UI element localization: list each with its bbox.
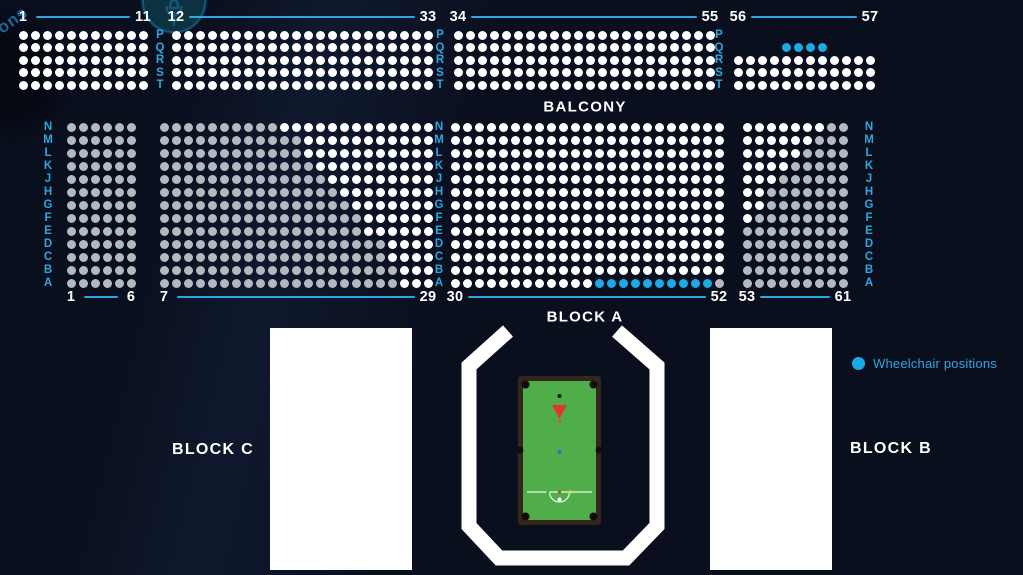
seat-floor-30-52-rowC-6[interactable]	[511, 253, 520, 262]
seat-balcony-1-11-rowR-11[interactable]	[139, 56, 148, 65]
seat-balcony-1-11-rowT-10[interactable]	[127, 81, 136, 90]
seat-balcony-12-33-rowP-11[interactable]	[292, 31, 301, 40]
seat-balcony-12-33-rowT-22[interactable]	[424, 81, 433, 90]
seat-floor-30-52-rowH-5[interactable]	[499, 188, 508, 197]
seat-balcony-1-11-rowQ-1[interactable]	[19, 43, 28, 52]
seat-balcony-34-55-rowR-15[interactable]	[622, 56, 631, 65]
seat-floor-30-52-rowG-10[interactable]	[559, 201, 568, 210]
seat-floor-30-52-rowA-11[interactable]	[571, 279, 580, 288]
seat-floor-7-29-rowB-21[interactable]	[400, 266, 409, 275]
seat-floor-30-52-rowB-11[interactable]	[571, 266, 580, 275]
seat-floor-30-52-rowK-23[interactable]	[715, 162, 724, 171]
seat-balcony-34-55-rowR-7[interactable]	[526, 56, 535, 65]
seat-floor-30-52-rowJ-14[interactable]	[607, 175, 616, 184]
seat-balcony-12-33-rowR-11[interactable]	[292, 56, 301, 65]
seat-balcony-34-55-rowT-22[interactable]	[706, 81, 715, 90]
seat-balcony-12-33-rowS-15[interactable]	[340, 68, 349, 77]
seat-balcony-34-55-rowQ-4[interactable]	[490, 43, 499, 52]
seat-floor-7-29-rowH-17[interactable]	[352, 188, 361, 197]
seat-floor-7-29-rowH-22[interactable]	[412, 188, 421, 197]
seat-balcony-34-55-rowR-5[interactable]	[502, 56, 511, 65]
seat-floor-7-29-rowG-20[interactable]	[388, 201, 397, 210]
seat-floor-30-52-rowN-6[interactable]	[511, 123, 520, 132]
seat-balcony-12-33-rowT-19[interactable]	[388, 81, 397, 90]
seat-balcony-12-33-rowS-2[interactable]	[184, 68, 193, 77]
seat-balcony-34-55-rowS-12[interactable]	[586, 68, 595, 77]
seat-floor-30-52-rowJ-9[interactable]	[547, 175, 556, 184]
seat-floor-30-52-rowD-16[interactable]	[631, 240, 640, 249]
seat-balcony-12-33-rowT-4[interactable]	[208, 81, 217, 90]
seat-balcony-1-11-rowR-8[interactable]	[103, 56, 112, 65]
seat-floor-7-29-rowJ-18[interactable]	[364, 175, 373, 184]
seat-balcony-34-55-rowS-5[interactable]	[502, 68, 511, 77]
seat-balcony-1-11-rowS-10[interactable]	[127, 68, 136, 77]
seat-floor-53-61-rowN-7[interactable]	[815, 123, 824, 132]
seat-balcony-34-55-rowT-3[interactable]	[478, 81, 487, 90]
seat-floor-30-52-rowG-20[interactable]	[679, 201, 688, 210]
seat-floor-7-29-rowC-21[interactable]	[400, 253, 409, 262]
seat-balcony-12-33-rowQ-5[interactable]	[220, 43, 229, 52]
seat-balcony-1-11-rowP-2[interactable]	[31, 31, 40, 40]
seat-floor-30-52-rowK-3[interactable]	[475, 162, 484, 171]
seat-floor-30-52-rowH-23[interactable]	[715, 188, 724, 197]
seat-balcony-56-57-rowS-12[interactable]	[866, 68, 875, 77]
seat-floor-30-52-rowE-11[interactable]	[571, 227, 580, 236]
seat-balcony-34-55-rowQ-19[interactable]	[670, 43, 679, 52]
seat-floor-30-52-rowG-3[interactable]	[475, 201, 484, 210]
seat-floor-30-52-rowJ-23[interactable]	[715, 175, 724, 184]
seat-floor-30-52-rowF-15[interactable]	[619, 214, 628, 223]
seat-floor-30-52-rowM-18[interactable]	[655, 136, 664, 145]
seat-floor-7-29-rowA-22[interactable]	[412, 279, 421, 288]
seat-balcony-34-55-rowT-21[interactable]	[694, 81, 703, 90]
seat-balcony-1-11-rowQ-7[interactable]	[91, 43, 100, 52]
seat-balcony-56-57-rowR-4[interactable]	[770, 56, 779, 65]
seat-floor-30-52-rowM-5[interactable]	[499, 136, 508, 145]
seat-floor-30-52-rowH-19[interactable]	[667, 188, 676, 197]
seat-floor-30-52-rowB-19[interactable]	[667, 266, 676, 275]
seat-floor-30-52-rowD-6[interactable]	[511, 240, 520, 249]
seat-balcony-12-33-rowS-19[interactable]	[388, 68, 397, 77]
seat-balcony-34-55-rowP-4[interactable]	[490, 31, 499, 40]
seat-balcony-56-57-rowT-8[interactable]	[818, 81, 827, 90]
seat-floor-30-52-rowE-8[interactable]	[535, 227, 544, 236]
seat-floor-30-52-rowN-16[interactable]	[631, 123, 640, 132]
seat-floor-30-52-rowF-19[interactable]	[667, 214, 676, 223]
seat-balcony-12-33-rowS-5[interactable]	[220, 68, 229, 77]
seat-floor-7-29-rowG-17[interactable]	[352, 201, 361, 210]
seat-floor-7-29-rowL-13[interactable]	[304, 149, 313, 158]
seat-balcony-12-33-rowS-21[interactable]	[412, 68, 421, 77]
seat-balcony-12-33-rowR-14[interactable]	[328, 56, 337, 65]
seat-balcony-12-33-rowT-8[interactable]	[256, 81, 265, 90]
seat-balcony-12-33-rowS-17[interactable]	[364, 68, 373, 77]
seat-floor-30-52-rowD-4[interactable]	[487, 240, 496, 249]
seat-floor-30-52-rowM-6[interactable]	[511, 136, 520, 145]
seat-floor-30-52-rowK-17[interactable]	[643, 162, 652, 171]
seat-floor-53-61-rowN-3[interactable]	[767, 123, 776, 132]
seat-balcony-12-33-rowS-7[interactable]	[244, 68, 253, 77]
seat-floor-30-52-rowM-14[interactable]	[607, 136, 616, 145]
seat-balcony-34-55-rowR-6[interactable]	[514, 56, 523, 65]
seat-floor-30-52-rowD-2[interactable]	[463, 240, 472, 249]
seat-floor-30-52-rowD-3[interactable]	[475, 240, 484, 249]
seat-floor-7-29-rowJ-19[interactable]	[376, 175, 385, 184]
seat-balcony-12-33-rowQ-3[interactable]	[196, 43, 205, 52]
seat-floor-53-61-rowM-1[interactable]	[743, 136, 752, 145]
seat-floor-30-52-rowA-6[interactable]	[511, 279, 520, 288]
seat-balcony-12-33-rowT-17[interactable]	[364, 81, 373, 90]
seat-floor-7-29-rowK-15[interactable]	[328, 162, 337, 171]
seat-floor-30-52-rowJ-5[interactable]	[499, 175, 508, 184]
seat-balcony-56-57-rowR-9[interactable]	[830, 56, 839, 65]
seat-floor-30-52-rowD-19[interactable]	[667, 240, 676, 249]
seat-balcony-1-11-rowT-3[interactable]	[43, 81, 52, 90]
seat-balcony-34-55-rowP-19[interactable]	[670, 31, 679, 40]
seat-balcony-56-57-rowS-7[interactable]	[806, 68, 815, 77]
seat-floor-30-52-rowN-19[interactable]	[667, 123, 676, 132]
seat-floor-30-52-rowM-2[interactable]	[463, 136, 472, 145]
seat-floor-30-52-rowF-20[interactable]	[679, 214, 688, 223]
seat-floor-30-52-rowG-6[interactable]	[511, 201, 520, 210]
seat-floor-30-52-rowE-20[interactable]	[679, 227, 688, 236]
seat-floor-30-52-rowB-2[interactable]	[463, 266, 472, 275]
seat-balcony-56-57-rowS-10[interactable]	[842, 68, 851, 77]
seat-balcony-34-55-rowT-20[interactable]	[682, 81, 691, 90]
seat-floor-30-52-rowL-20[interactable]	[679, 149, 688, 158]
seat-floor-30-52-rowG-15[interactable]	[619, 201, 628, 210]
seat-floor-7-29-rowN-12[interactable]	[292, 123, 301, 132]
seat-balcony-34-55-rowP-5[interactable]	[502, 31, 511, 40]
seat-balcony-1-11-rowQ-6[interactable]	[79, 43, 88, 52]
seat-floor-30-52-rowN-11[interactable]	[571, 123, 580, 132]
seat-balcony-34-55-rowR-19[interactable]	[670, 56, 679, 65]
seat-balcony-12-33-rowR-12[interactable]	[304, 56, 313, 65]
seat-floor-30-52-rowG-13[interactable]	[595, 201, 604, 210]
seat-balcony-34-55-rowQ-22[interactable]	[706, 43, 715, 52]
seat-floor-30-52-rowE-3[interactable]	[475, 227, 484, 236]
seat-balcony-12-33-rowS-4[interactable]	[208, 68, 217, 77]
seat-balcony-12-33-rowS-1[interactable]	[172, 68, 181, 77]
seat-floor-30-52-rowB-23[interactable]	[715, 266, 724, 275]
seat-floor-30-52-rowC-4[interactable]	[487, 253, 496, 262]
seat-balcony-34-55-rowP-22[interactable]	[706, 31, 715, 40]
seat-balcony-12-33-rowR-2[interactable]	[184, 56, 193, 65]
seat-floor-30-52-rowF-14[interactable]	[607, 214, 616, 223]
seat-floor-30-52-rowJ-7[interactable]	[523, 175, 532, 184]
seat-floor-30-52-rowB-22[interactable]	[703, 266, 712, 275]
seat-floor-7-29-rowM-16[interactable]	[340, 136, 349, 145]
seat-floor-30-52-rowF-22[interactable]	[703, 214, 712, 223]
seat-floor-30-52-rowH-12[interactable]	[583, 188, 592, 197]
seat-floor-30-52-rowG-17[interactable]	[643, 201, 652, 210]
seat-balcony-1-11-rowP-4[interactable]	[55, 31, 64, 40]
seat-floor-30-52-rowB-3[interactable]	[475, 266, 484, 275]
seat-balcony-56-57-rowT-9[interactable]	[830, 81, 839, 90]
seat-floor-30-52-rowF-4[interactable]	[487, 214, 496, 223]
seat-balcony-12-33-rowP-22[interactable]	[424, 31, 433, 40]
seat-floor-7-29-rowE-22[interactable]	[412, 227, 421, 236]
seat-floor-30-52-rowF-11[interactable]	[571, 214, 580, 223]
seat-balcony-12-33-rowR-4[interactable]	[208, 56, 217, 65]
seat-floor-30-52-rowB-15[interactable]	[619, 266, 628, 275]
seat-balcony-56-57-rowQ-8[interactable]	[818, 43, 827, 52]
seat-floor-30-52-rowA-7[interactable]	[523, 279, 532, 288]
seat-balcony-1-11-rowS-2[interactable]	[31, 68, 40, 77]
seat-floor-30-52-rowG-4[interactable]	[487, 201, 496, 210]
seat-balcony-34-55-rowR-14[interactable]	[610, 56, 619, 65]
seat-balcony-56-57-rowT-4[interactable]	[770, 81, 779, 90]
seat-balcony-34-55-rowR-11[interactable]	[574, 56, 583, 65]
seat-floor-30-52-rowJ-3[interactable]	[475, 175, 484, 184]
seat-floor-7-29-rowN-18[interactable]	[364, 123, 373, 132]
seat-floor-7-29-rowL-23[interactable]	[424, 149, 433, 158]
seat-balcony-34-55-rowT-11[interactable]	[574, 81, 583, 90]
seat-balcony-1-11-rowT-5[interactable]	[67, 81, 76, 90]
seat-floor-53-61-rowN-5[interactable]	[791, 123, 800, 132]
seat-floor-30-52-rowF-1[interactable]	[451, 214, 460, 223]
seat-floor-7-29-rowE-19[interactable]	[376, 227, 385, 236]
seat-balcony-12-33-rowP-9[interactable]	[268, 31, 277, 40]
seat-balcony-1-11-rowQ-11[interactable]	[139, 43, 148, 52]
seat-balcony-12-33-rowT-16[interactable]	[352, 81, 361, 90]
seat-floor-7-29-rowJ-21[interactable]	[400, 175, 409, 184]
seat-floor-30-52-rowF-3[interactable]	[475, 214, 484, 223]
seat-floor-7-29-rowH-21[interactable]	[400, 188, 409, 197]
seat-balcony-34-55-rowQ-2[interactable]	[466, 43, 475, 52]
seat-floor-30-52-rowJ-8[interactable]	[535, 175, 544, 184]
seat-balcony-1-11-rowT-4[interactable]	[55, 81, 64, 90]
seat-balcony-1-11-rowQ-10[interactable]	[127, 43, 136, 52]
seat-floor-30-52-rowB-5[interactable]	[499, 266, 508, 275]
seat-floor-30-52-rowA-5[interactable]	[499, 279, 508, 288]
seat-floor-53-61-rowJ-1[interactable]	[743, 175, 752, 184]
seat-balcony-12-33-rowT-13[interactable]	[316, 81, 325, 90]
seat-balcony-56-57-rowT-3[interactable]	[758, 81, 767, 90]
seat-floor-7-29-rowN-21[interactable]	[400, 123, 409, 132]
seat-balcony-12-33-rowP-12[interactable]	[304, 31, 313, 40]
seat-floor-7-29-rowD-21[interactable]	[400, 240, 409, 249]
seat-floor-30-52-rowK-1[interactable]	[451, 162, 460, 171]
seat-floor-30-52-rowK-2[interactable]	[463, 162, 472, 171]
seat-balcony-34-55-rowQ-1[interactable]	[454, 43, 463, 52]
seat-balcony-12-33-rowR-22[interactable]	[424, 56, 433, 65]
seat-floor-30-52-rowC-3[interactable]	[475, 253, 484, 262]
seat-floor-7-29-rowE-18[interactable]	[364, 227, 373, 236]
seat-floor-7-29-rowN-11[interactable]	[280, 123, 289, 132]
seat-floor-7-29-rowA-21[interactable]	[400, 279, 409, 288]
seat-balcony-34-55-rowQ-20[interactable]	[682, 43, 691, 52]
seat-floor-30-52-rowN-22[interactable]	[703, 123, 712, 132]
seat-floor-30-52-rowE-7[interactable]	[523, 227, 532, 236]
seat-floor-30-52-rowK-6[interactable]	[511, 162, 520, 171]
seat-balcony-34-55-rowR-8[interactable]	[538, 56, 547, 65]
seat-floor-30-52-rowK-5[interactable]	[499, 162, 508, 171]
seat-floor-7-29-rowC-23[interactable]	[424, 253, 433, 262]
seat-balcony-56-57-rowS-11[interactable]	[854, 68, 863, 77]
seat-floor-30-52-rowN-9[interactable]	[547, 123, 556, 132]
seat-floor-30-52-rowF-2[interactable]	[463, 214, 472, 223]
seat-floor-53-61-rowM-6[interactable]	[803, 136, 812, 145]
seat-balcony-56-57-rowQ-5[interactable]	[782, 43, 791, 52]
seat-balcony-12-33-rowQ-14[interactable]	[328, 43, 337, 52]
seat-floor-30-52-rowC-15[interactable]	[619, 253, 628, 262]
seat-floor-30-52-rowJ-16[interactable]	[631, 175, 640, 184]
seat-floor-30-52-rowB-14[interactable]	[607, 266, 616, 275]
seat-floor-7-29-rowN-19[interactable]	[376, 123, 385, 132]
seat-balcony-12-33-rowT-2[interactable]	[184, 81, 193, 90]
seat-balcony-12-33-rowP-21[interactable]	[412, 31, 421, 40]
seat-balcony-34-55-rowQ-6[interactable]	[514, 43, 523, 52]
seat-floor-30-52-rowM-19[interactable]	[667, 136, 676, 145]
seat-floor-30-52-rowD-13[interactable]	[595, 240, 604, 249]
seat-balcony-12-33-rowP-16[interactable]	[352, 31, 361, 40]
seat-floor-30-52-rowN-21[interactable]	[691, 123, 700, 132]
seat-floor-53-61-rowF-1[interactable]	[743, 214, 752, 223]
seat-floor-53-61-rowM-4[interactable]	[779, 136, 788, 145]
seat-floor-30-52-rowD-5[interactable]	[499, 240, 508, 249]
seat-floor-30-52-rowH-14[interactable]	[607, 188, 616, 197]
seat-floor-30-52-rowC-9[interactable]	[547, 253, 556, 262]
seat-floor-30-52-rowE-19[interactable]	[667, 227, 676, 236]
seat-floor-30-52-rowH-17[interactable]	[643, 188, 652, 197]
seat-floor-30-52-rowJ-15[interactable]	[619, 175, 628, 184]
seat-floor-30-52-rowF-5[interactable]	[499, 214, 508, 223]
seat-floor-30-52-rowJ-4[interactable]	[487, 175, 496, 184]
seat-balcony-34-55-rowS-9[interactable]	[550, 68, 559, 77]
seat-floor-53-61-rowK-4[interactable]	[779, 162, 788, 171]
seat-balcony-1-11-rowQ-9[interactable]	[115, 43, 124, 52]
seat-balcony-12-33-rowT-1[interactable]	[172, 81, 181, 90]
seat-balcony-34-55-rowR-13[interactable]	[598, 56, 607, 65]
seat-floor-30-52-rowN-23[interactable]	[715, 123, 724, 132]
seat-balcony-34-55-rowP-10[interactable]	[562, 31, 571, 40]
seat-balcony-1-11-rowP-9[interactable]	[115, 31, 124, 40]
seat-floor-30-52-rowF-6[interactable]	[511, 214, 520, 223]
seat-balcony-56-57-rowR-10[interactable]	[842, 56, 851, 65]
seat-floor-30-52-rowH-1[interactable]	[451, 188, 460, 197]
seat-floor-30-52-rowH-16[interactable]	[631, 188, 640, 197]
seat-floor-30-52-rowJ-20[interactable]	[679, 175, 688, 184]
seat-balcony-56-57-rowS-2[interactable]	[746, 68, 755, 77]
seat-floor-30-52-rowC-7[interactable]	[523, 253, 532, 262]
seat-balcony-12-33-rowP-1[interactable]	[172, 31, 181, 40]
seat-floor-7-29-rowL-17[interactable]	[352, 149, 361, 158]
seat-floor-30-52-rowG-12[interactable]	[583, 201, 592, 210]
seat-floor-30-52-rowE-5[interactable]	[499, 227, 508, 236]
seat-floor-30-52-rowM-11[interactable]	[571, 136, 580, 145]
seat-floor-53-61-rowN-2[interactable]	[755, 123, 764, 132]
seat-floor-30-52-rowJ-6[interactable]	[511, 175, 520, 184]
seat-balcony-34-55-rowP-18[interactable]	[658, 31, 667, 40]
seat-balcony-1-11-rowP-7[interactable]	[91, 31, 100, 40]
seat-floor-30-52-rowN-17[interactable]	[643, 123, 652, 132]
seat-balcony-56-57-rowS-8[interactable]	[818, 68, 827, 77]
seat-balcony-1-11-rowR-5[interactable]	[67, 56, 76, 65]
seat-floor-7-29-rowJ-15[interactable]	[328, 175, 337, 184]
seat-floor-7-29-rowK-23[interactable]	[424, 162, 433, 171]
seat-floor-7-29-rowL-14[interactable]	[316, 149, 325, 158]
seat-balcony-12-33-rowS-13[interactable]	[316, 68, 325, 77]
seat-floor-53-61-rowM-2[interactable]	[755, 136, 764, 145]
seat-floor-30-52-rowK-11[interactable]	[571, 162, 580, 171]
seat-balcony-34-55-rowP-14[interactable]	[610, 31, 619, 40]
seat-balcony-34-55-rowT-2[interactable]	[466, 81, 475, 90]
seat-floor-7-29-rowA-23[interactable]	[424, 279, 433, 288]
seat-balcony-12-33-rowQ-4[interactable]	[208, 43, 217, 52]
seat-floor-30-52-rowF-10[interactable]	[559, 214, 568, 223]
seat-floor-30-52-rowG-2[interactable]	[463, 201, 472, 210]
seat-floor-30-52-rowC-14[interactable]	[607, 253, 616, 262]
seat-balcony-1-11-rowS-6[interactable]	[79, 68, 88, 77]
seat-balcony-12-33-rowT-5[interactable]	[220, 81, 229, 90]
seat-balcony-12-33-rowT-18[interactable]	[376, 81, 385, 90]
seat-floor-30-52-rowA-16[interactable]	[631, 279, 640, 288]
seat-balcony-1-11-rowR-7[interactable]	[91, 56, 100, 65]
seat-balcony-56-57-rowS-1[interactable]	[734, 68, 743, 77]
seat-balcony-1-11-rowS-5[interactable]	[67, 68, 76, 77]
seat-floor-30-52-rowM-4[interactable]	[487, 136, 496, 145]
seat-floor-30-52-rowN-12[interactable]	[583, 123, 592, 132]
seat-floor-7-29-rowM-19[interactable]	[376, 136, 385, 145]
seat-floor-30-52-rowE-16[interactable]	[631, 227, 640, 236]
seat-balcony-34-55-rowS-2[interactable]	[466, 68, 475, 77]
seat-balcony-34-55-rowQ-18[interactable]	[658, 43, 667, 52]
seat-balcony-1-11-rowQ-5[interactable]	[67, 43, 76, 52]
seat-floor-53-61-rowK-2[interactable]	[755, 162, 764, 171]
seat-floor-7-29-rowN-20[interactable]	[388, 123, 397, 132]
seat-balcony-12-33-rowT-14[interactable]	[328, 81, 337, 90]
seat-floor-30-52-rowN-20[interactable]	[679, 123, 688, 132]
seat-floor-7-29-rowM-18[interactable]	[364, 136, 373, 145]
seat-floor-7-29-rowM-22[interactable]	[412, 136, 421, 145]
seat-balcony-12-33-rowR-21[interactable]	[412, 56, 421, 65]
seat-floor-30-52-rowL-7[interactable]	[523, 149, 532, 158]
seat-balcony-34-55-rowQ-10[interactable]	[562, 43, 571, 52]
seat-balcony-12-33-rowP-3[interactable]	[196, 31, 205, 40]
seat-floor-30-52-rowA-9[interactable]	[547, 279, 556, 288]
seat-balcony-34-55-rowR-10[interactable]	[562, 56, 571, 65]
seat-floor-30-52-rowK-15[interactable]	[619, 162, 628, 171]
seat-floor-53-61-rowM-5[interactable]	[791, 136, 800, 145]
seat-balcony-34-55-rowP-2[interactable]	[466, 31, 475, 40]
seat-balcony-34-55-rowS-6[interactable]	[514, 68, 523, 77]
seat-floor-30-52-rowJ-17[interactable]	[643, 175, 652, 184]
seat-balcony-1-11-rowS-7[interactable]	[91, 68, 100, 77]
seat-floor-30-52-rowH-10[interactable]	[559, 188, 568, 197]
seat-floor-7-29-rowJ-22[interactable]	[412, 175, 421, 184]
seat-balcony-1-11-rowR-6[interactable]	[79, 56, 88, 65]
seat-balcony-12-33-rowP-8[interactable]	[256, 31, 265, 40]
seat-balcony-34-55-rowP-6[interactable]	[514, 31, 523, 40]
seat-floor-7-29-rowL-22[interactable]	[412, 149, 421, 158]
seat-floor-7-29-rowH-23[interactable]	[424, 188, 433, 197]
seat-balcony-12-33-rowT-20[interactable]	[400, 81, 409, 90]
seat-floor-30-52-rowA-1[interactable]	[451, 279, 460, 288]
seat-floor-30-52-rowH-3[interactable]	[475, 188, 484, 197]
seat-floor-30-52-rowB-12[interactable]	[583, 266, 592, 275]
seat-balcony-56-57-rowR-2[interactable]	[746, 56, 755, 65]
seat-balcony-56-57-rowR-11[interactable]	[854, 56, 863, 65]
seat-balcony-34-55-rowR-17[interactable]	[646, 56, 655, 65]
seat-floor-30-52-rowF-16[interactable]	[631, 214, 640, 223]
seat-floor-30-52-rowJ-18[interactable]	[655, 175, 664, 184]
seat-floor-30-52-rowA-20[interactable]	[679, 279, 688, 288]
seat-floor-53-61-rowJ-3[interactable]	[767, 175, 776, 184]
seat-floor-30-52-rowD-11[interactable]	[571, 240, 580, 249]
seat-floor-7-29-rowM-15[interactable]	[328, 136, 337, 145]
seat-floor-30-52-rowC-22[interactable]	[703, 253, 712, 262]
